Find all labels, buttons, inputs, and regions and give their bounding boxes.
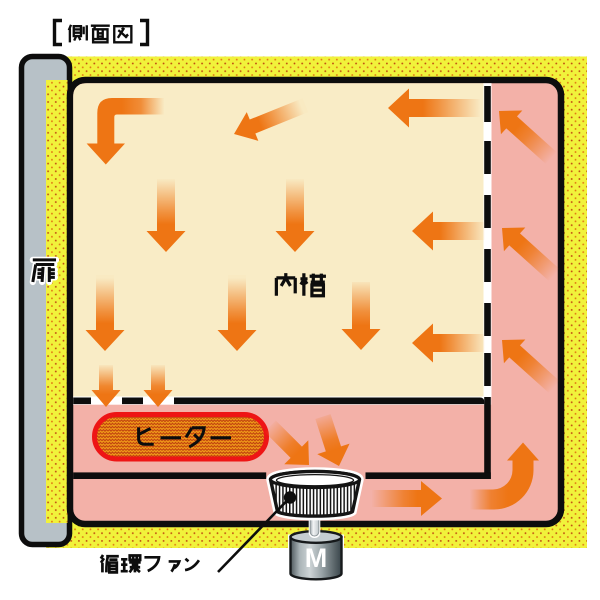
svg-text:M: M <box>305 543 328 573</box>
